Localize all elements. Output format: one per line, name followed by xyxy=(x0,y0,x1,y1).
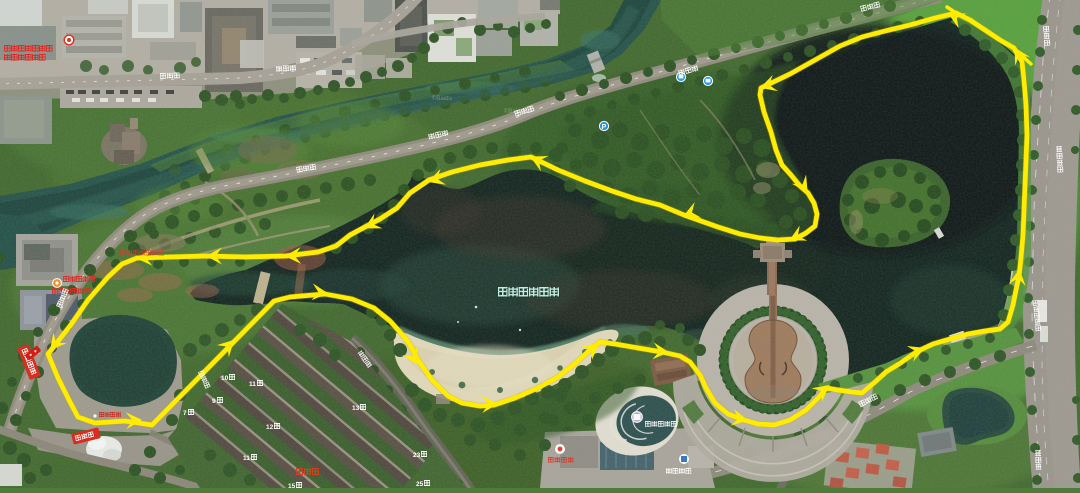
svg-text:10: 10 xyxy=(221,375,229,382)
svg-text:7: 7 xyxy=(183,410,187,417)
svg-text:13: 13 xyxy=(352,405,360,412)
svg-text:P: P xyxy=(602,124,607,131)
svg-text:12: 12 xyxy=(266,424,274,431)
svg-text:©Baidu: ©Baidu xyxy=(432,95,452,102)
svg-text:9: 9 xyxy=(212,398,216,405)
svg-text:©Baidu: ©Baidu xyxy=(504,108,524,115)
svg-text:11: 11 xyxy=(243,455,250,462)
svg-text:25: 25 xyxy=(416,481,424,488)
svg-text:11: 11 xyxy=(249,381,256,388)
svg-text:15: 15 xyxy=(288,483,296,488)
svg-text:23: 23 xyxy=(413,452,421,459)
